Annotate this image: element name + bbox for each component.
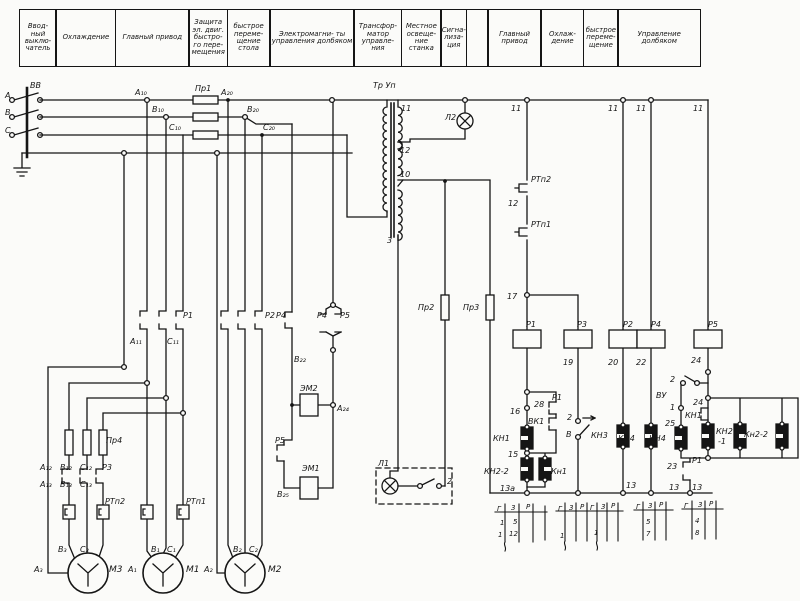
schematic-label: Р1	[526, 320, 536, 329]
schematic-label: 24	[691, 356, 701, 365]
schematic-label: 12	[400, 146, 410, 155]
schematic-label: В₂₂	[294, 355, 307, 364]
button-kn2-1	[702, 422, 714, 450]
schematic-label: С₂₀	[263, 123, 276, 132]
schematic-label: А₁₁	[129, 337, 142, 346]
header-cell-6: Трансфор- матор управле- ния	[353, 9, 402, 67]
schematic-label: 28	[534, 400, 544, 409]
fuse-pr2	[441, 295, 449, 320]
schematic-label: 3	[698, 501, 702, 509]
schematic-label: Пр4	[106, 436, 122, 445]
schematic-label: А	[4, 91, 10, 100]
schematic-label: Р4	[651, 320, 661, 329]
schematic-label: 5	[646, 518, 651, 526]
relay-coil-p2	[609, 330, 637, 348]
schematic-label: Р3	[577, 320, 587, 329]
button-kn1	[521, 425, 533, 451]
p1-aux-contact	[549, 402, 556, 414]
schematic-label: А₁₃	[39, 480, 52, 489]
schematic-label: 11	[693, 104, 703, 113]
motor-m3-icon	[68, 553, 108, 593]
schematic-label: А₁	[127, 565, 137, 574]
schematic-label: М2	[268, 565, 282, 575]
lamp-l1-fixture	[376, 468, 452, 504]
schematic-label: 4	[695, 517, 699, 525]
vk1-contact	[549, 418, 556, 430]
schematic-label: 17	[507, 292, 518, 301]
schematic-label: Р1	[552, 393, 562, 402]
schematic-label: ВК1	[528, 417, 544, 426]
junction-dots	[226, 98, 447, 407]
schematic-label: Р2	[265, 311, 275, 320]
schematic-label: РТп2	[531, 175, 551, 184]
schematic-label: 1	[594, 529, 598, 537]
schematic-label: 2	[567, 413, 572, 422]
schematic-label: В₁	[151, 545, 160, 554]
kn1-aux-contact	[701, 408, 708, 420]
schematic-label: ЭМ2	[299, 384, 318, 393]
p4p5-parallel	[318, 100, 341, 488]
schematic-label: Р1	[183, 311, 193, 320]
p1-bottom-contact	[683, 462, 690, 480]
schematic-label: С₁₂	[80, 463, 93, 472]
schematic-label: 19	[563, 358, 573, 367]
schematic-label: Кн1	[551, 467, 567, 476]
header-cell-7: Местное освеще- ние станка	[401, 9, 442, 67]
schematic-label: 13а	[500, 484, 515, 493]
schematic-label: Л2	[444, 113, 456, 122]
header-cell-1: Охлаждение	[55, 9, 116, 67]
schematic-label: РТп2	[105, 497, 125, 506]
schematic-label: Р	[580, 503, 585, 511]
schematic-label: ВУ	[656, 391, 667, 400]
schematic-label: 1	[500, 519, 504, 527]
schematic-label: А₂	[203, 565, 213, 574]
schematic-label: 24	[693, 398, 703, 407]
schematic-label: 8	[695, 529, 700, 537]
schematic-label: С₂	[249, 545, 259, 554]
fuse-pr1	[193, 96, 218, 139]
p5-aux-contact	[277, 445, 284, 461]
schematic-label: 1	[560, 532, 564, 540]
schematic-label: А₂₀	[220, 88, 234, 97]
schematic-label: Р1	[692, 456, 702, 465]
schematic-label: 3	[601, 503, 605, 511]
schematic-label: В₁₀	[152, 105, 165, 114]
schematic-label: 1	[670, 403, 675, 412]
schematic-label: Р3	[102, 463, 112, 472]
schematic-label: 10	[400, 170, 410, 179]
schematic-label: Р5	[340, 311, 350, 320]
header-cell-3: Защита эл. двиг. быстро- го пере- мещени…	[188, 9, 228, 67]
schematic-label: 11	[401, 104, 411, 113]
schematic-label: В₂₅	[277, 490, 289, 499]
schematic-label: Р4	[317, 311, 327, 320]
relay-coil-p4	[637, 330, 665, 348]
schematic-label: 13	[692, 483, 702, 492]
schematic-label: 20	[608, 358, 618, 367]
fuse-pr3	[486, 295, 494, 320]
schematic-label: 13	[626, 481, 636, 490]
schematic-label: Тр Уп	[373, 81, 396, 90]
schematic-label: Р	[526, 503, 531, 511]
schematic-label: А₁₂	[39, 463, 53, 472]
function-header-row: Ввод- ный выклю- чательОхлаждениеГлавный…	[19, 9, 701, 67]
tap3-wire	[390, 235, 398, 478]
schematic-label: Р4	[276, 311, 286, 320]
thermal-contact-rtp1	[515, 228, 527, 236]
schematic-label: Р5	[708, 320, 718, 329]
relay-coil-p5	[694, 330, 722, 348]
schematic-label: С₁	[167, 545, 176, 554]
motor-m1-icon	[143, 553, 183, 593]
em1-coil	[300, 477, 318, 499]
schematic-label: 11	[511, 104, 521, 113]
main-switch	[10, 88, 43, 157]
motor-m2-icon	[225, 553, 265, 593]
schematic-label: Пр1	[195, 84, 211, 93]
schematic-label: В₁₃	[60, 480, 72, 489]
schematic-label: 2	[447, 477, 452, 486]
schematic-label: 5	[513, 518, 518, 526]
feeder-m2-ground	[217, 153, 225, 573]
schematic-label: В	[5, 108, 11, 117]
header-cell-5: Электромагни- ты управления долбяком	[269, 9, 355, 67]
header-cell-10: Главный привод	[487, 9, 542, 67]
schematic-label: 11	[608, 104, 618, 113]
schematic-label: А₃	[33, 565, 43, 574]
schematic-label: 23	[667, 462, 677, 471]
header-cell-12: быстрое переме- щение	[583, 9, 619, 67]
header-cell-13: Управление долбяком	[617, 9, 701, 67]
schematic-label: М3	[109, 565, 123, 575]
schematic-label: 12	[509, 530, 518, 538]
button-kn1-aux	[539, 456, 551, 482]
schematic-label: РТп1	[531, 220, 551, 229]
schematic-label: В₃	[58, 545, 67, 554]
header-cell-0: Ввод- ный выклю- чатель	[19, 9, 57, 67]
schematic-label: Р5	[275, 436, 285, 445]
schematic-label: -1	[718, 437, 726, 446]
schematic-label: Л1	[377, 459, 389, 468]
schematic-label: 2	[670, 375, 675, 384]
schematic-label: 15	[508, 450, 518, 459]
schematic-label: 3	[569, 504, 573, 512]
schematic-label: Р2	[623, 320, 633, 329]
header-cell-4: быстрое переме- щение стола	[227, 9, 271, 67]
header-cell-8: Сигна- лиза- ция	[440, 9, 467, 67]
schematic-label: 7	[646, 530, 651, 538]
schematic-label: 13	[669, 483, 679, 492]
schematic-label: 16	[510, 407, 520, 416]
schematic-label: ВВ	[30, 81, 41, 90]
schematic-label: 3	[511, 504, 515, 512]
relay-coil-p1	[513, 330, 541, 348]
relay-coil-p3	[564, 330, 592, 348]
schematic-label: КН1	[493, 434, 510, 443]
schematic-label: 22	[636, 358, 646, 367]
feeder-m3-a	[48, 153, 124, 573]
em2-coil	[300, 394, 318, 416]
schematic-label: В₂	[233, 545, 242, 554]
schematic-label: Пр3	[463, 303, 479, 312]
schematic-label: С₃	[80, 545, 89, 554]
schematic-label: В	[566, 430, 572, 439]
schematic-label: 1	[498, 531, 502, 539]
schematic-label: 11	[636, 104, 646, 113]
schematic-label: КН3	[591, 431, 608, 440]
thermal-heaters	[63, 505, 189, 519]
button-kn2-2a	[521, 456, 533, 482]
schematic-label: Кн2-2	[744, 430, 768, 439]
schematic-label: 3	[387, 236, 392, 245]
schematic-label: 25	[665, 419, 675, 428]
schematic-label: М1	[186, 565, 200, 575]
lamp-l2-icon	[457, 113, 473, 129]
button-kn2-2b	[776, 422, 788, 450]
schematic-label: 3	[648, 502, 652, 510]
header-cell-9	[466, 9, 489, 67]
schematic-label: КН1	[685, 411, 702, 420]
schematic-label: С₁₁	[167, 337, 179, 346]
schematic-label: Р	[709, 500, 714, 508]
thermal-contact-rtp2	[515, 184, 527, 192]
schematic-label: А₁₀	[134, 88, 148, 97]
schematic-label: Пр2	[418, 303, 434, 312]
phase-c-to-transformer	[347, 135, 387, 217]
button-kn4-right	[675, 425, 687, 451]
circuit-diagram: АВСВВА₁₀В₁₀С₁₀Пр1А₂₀В₂₀С₂₀Тр Уп1112103Л2…	[0, 0, 800, 601]
schematic-label: РТп1	[186, 497, 206, 506]
header-cell-2: Главный привод	[115, 9, 190, 67]
schematic-label: С₁₃	[80, 480, 92, 489]
schematic-label: Р	[611, 502, 616, 510]
schematic-label: 12	[508, 199, 518, 208]
schematic-label: КН4	[618, 434, 635, 443]
schematic-label: А₂₄	[336, 404, 350, 413]
schematic-label: КН4	[649, 434, 666, 443]
schematic-label: С₁₀	[169, 123, 182, 132]
schematic-label: КН2-2	[484, 467, 509, 476]
schematic-label: КН2	[716, 427, 733, 436]
schematic-label: В₂₀	[247, 105, 260, 114]
schematic-label: В₁₂	[60, 463, 73, 472]
schematic-page: Ввод- ный выклю- чательОхлаждениеГлавный…	[0, 0, 800, 601]
em2-branch	[284, 124, 300, 488]
schematic-label: Г	[558, 505, 563, 513]
fuse-pr4-1	[65, 430, 73, 455]
schematic-label: Р	[659, 501, 664, 509]
fuse-pr4-2	[83, 430, 91, 455]
schematic-label: С	[5, 126, 11, 135]
schematic-label: ЭМ1	[301, 464, 320, 473]
header-cell-11: Охлаж- дение	[540, 9, 584, 67]
